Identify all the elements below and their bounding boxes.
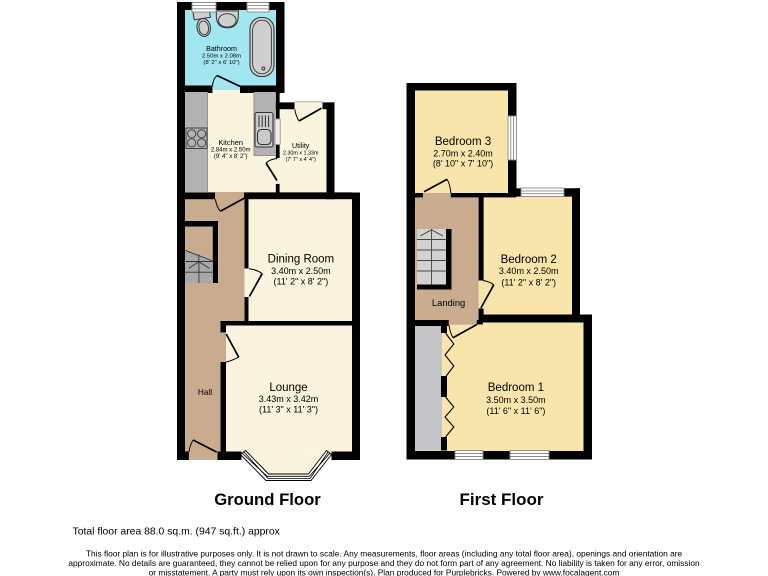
svg-text:Dining Room: Dining Room [268, 254, 334, 266]
svg-text:Bedroom 1: Bedroom 1 [488, 382, 544, 394]
svg-text:3.43m x 3.42m: 3.43m x 3.42m [259, 394, 319, 404]
svg-text:Total floor area 88.0 sq.m. (9: Total floor area 88.0 sq.m. (947 sq.ft.)… [73, 527, 281, 538]
svg-text:3.40m x 2.50m: 3.40m x 2.50m [499, 266, 559, 276]
svg-text:or misstatement. A party must: or misstatement. A party must rely upon … [149, 568, 620, 576]
svg-text:(7' 7" x 4' 4"): (7' 7" x 4' 4") [286, 157, 316, 163]
svg-text:(11' 2" x 8' 2"): (11' 2" x 8' 2") [274, 276, 329, 286]
svg-text:Bathroom: Bathroom [206, 45, 237, 53]
svg-text:Bedroom 2: Bedroom 2 [501, 254, 557, 266]
svg-text:(11' 2" x 8' 2"): (11' 2" x 8' 2") [501, 277, 556, 287]
svg-text:2.30m x 1.33m: 2.30m x 1.33m [283, 151, 319, 157]
svg-text:(11' 6" x 11' 6"): (11' 6" x 11' 6") [486, 406, 545, 416]
svg-text:(8' 2" x 6' 10"): (8' 2" x 6' 10") [203, 60, 239, 66]
svg-text:Kitchen: Kitchen [218, 138, 243, 147]
svg-text:Utility: Utility [292, 142, 310, 150]
svg-text:First Floor: First Floor [459, 490, 543, 509]
svg-text:(9' 4" x 8' 2"): (9' 4" x 8' 2") [214, 154, 248, 160]
svg-text:This floor plan is for illustr: This floor plan is for illustrative purp… [86, 549, 683, 559]
svg-text:2.84m x 2.50m: 2.84m x 2.50m [211, 148, 251, 154]
svg-text:2.50m x 2.08m: 2.50m x 2.08m [202, 54, 241, 60]
svg-text:3.50m x 3.50m: 3.50m x 3.50m [486, 395, 546, 405]
svg-text:Hall: Hall [198, 387, 212, 397]
svg-text:Ground Floor: Ground Floor [214, 490, 321, 509]
svg-text:Bedroom 3: Bedroom 3 [435, 136, 491, 148]
svg-text:Lounge: Lounge [269, 382, 307, 394]
svg-text:(11' 3" x 11' 3"): (11' 3" x 11' 3") [259, 405, 318, 415]
svg-text:(8' 10" x 7' 10"): (8' 10" x 7' 10") [433, 159, 493, 169]
svg-text:Landing: Landing [432, 297, 465, 308]
svg-text:2.70m x 2.40m: 2.70m x 2.40m [433, 148, 493, 158]
svg-text:3.40m x 2.50m: 3.40m x 2.50m [271, 266, 331, 276]
